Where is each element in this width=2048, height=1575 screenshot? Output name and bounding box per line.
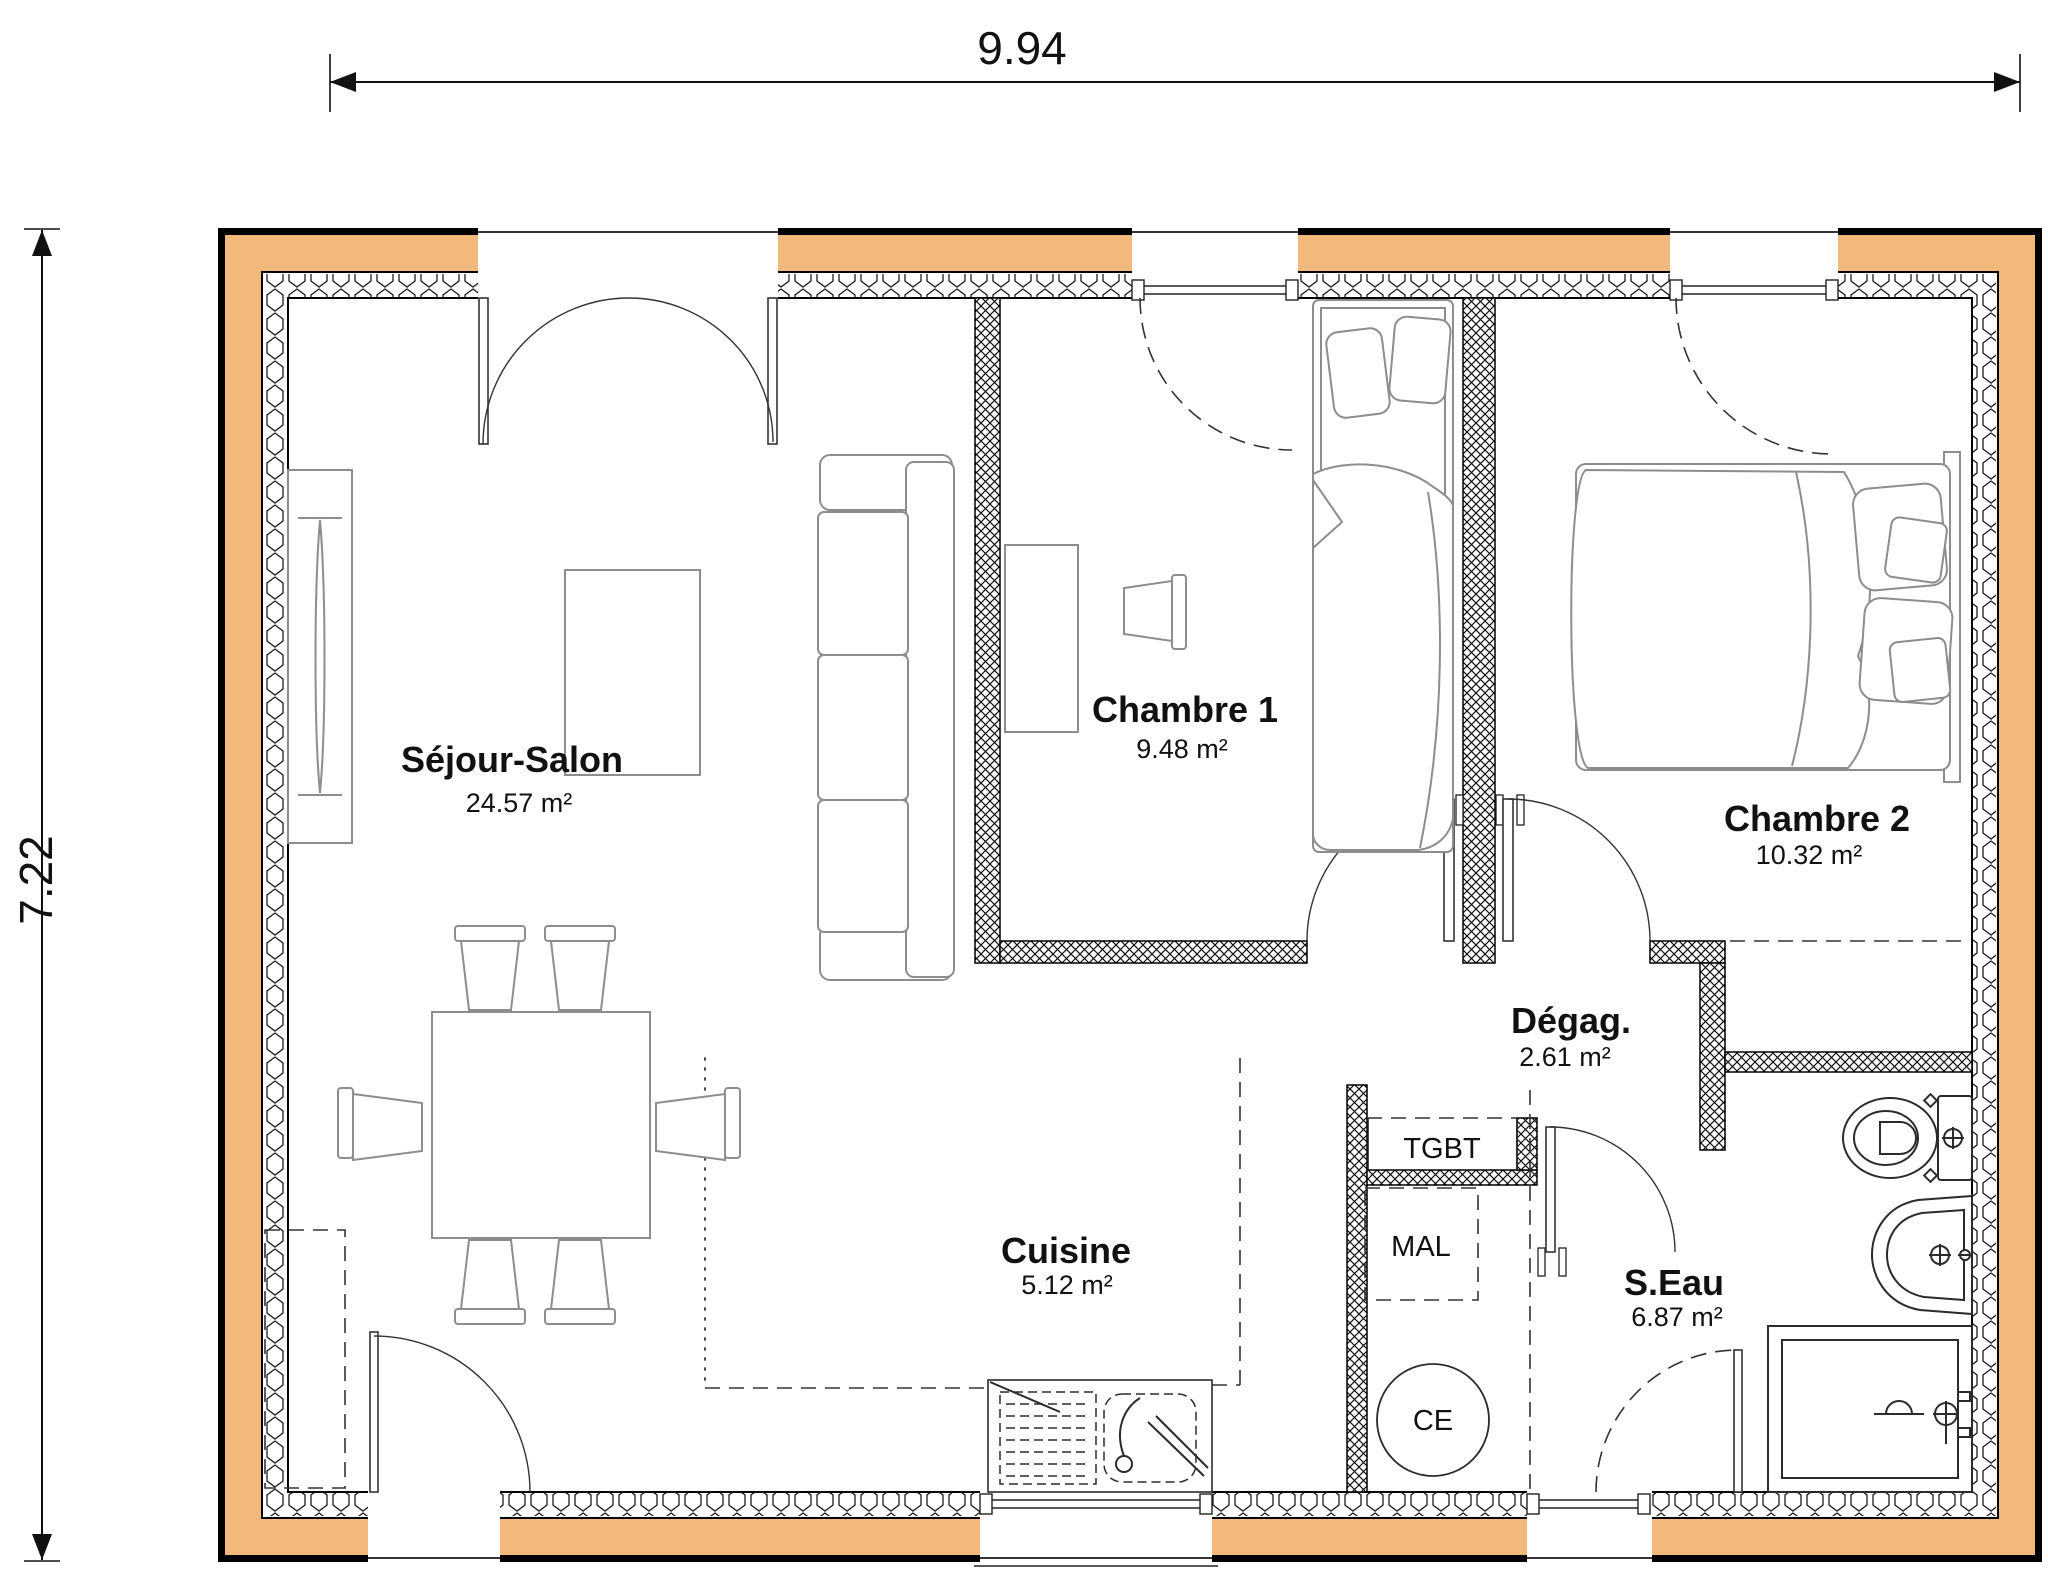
tgbt-label: TGBT (1403, 1133, 1481, 1165)
bed-single (1313, 300, 1453, 852)
room-area-sejour: 24.57 m² (466, 788, 573, 818)
toilet (1843, 1094, 1972, 1182)
sofa (818, 455, 954, 980)
dimension-top: 9.94 (330, 22, 2020, 112)
wall-closet-left (1347, 1085, 1367, 1492)
wall-sejour-chambre1 (975, 298, 1000, 963)
arrow-up-icon (32, 230, 52, 256)
cushion (1889, 637, 1951, 703)
floor-plan: 9.94 7.22 (0, 0, 2048, 1575)
room-label-cuisine: Cuisine (1001, 1230, 1131, 1271)
room-area-chambre1: 9.48 m² (1136, 734, 1228, 764)
wall-seau-top (1725, 1052, 1972, 1072)
room-label-chambre1: Chambre 1 (1092, 689, 1278, 730)
room-area-chambre2: 10.32 m² (1756, 840, 1863, 870)
cushion (1884, 516, 1948, 583)
dimension-left: 7.22 (10, 229, 62, 1561)
mal-label: MAL (1391, 1231, 1451, 1263)
wall-chambre1-bottom (1000, 941, 1307, 963)
room-label-chambre2: Chambre 2 (1724, 798, 1910, 839)
wall-degag-right (1700, 963, 1725, 1150)
room-label-degag: Dégag. (1511, 1000, 1631, 1041)
arrow-right-icon (1994, 72, 2020, 92)
wall-chambre2-bottom (1650, 941, 1725, 963)
dining-table (432, 1012, 650, 1238)
arrow-down-icon (32, 1534, 52, 1560)
wall-tgbt-bottom (1367, 1170, 1537, 1185)
room-label-seau: S.Eau (1624, 1262, 1724, 1303)
bed-double (1571, 452, 1960, 782)
duvet (1571, 470, 1870, 768)
dimension-left-value: 7.22 (10, 835, 62, 925)
ce-label: CE (1413, 1405, 1453, 1437)
desk (1005, 545, 1078, 732)
furniture-chambre2 (1571, 452, 1960, 782)
pillow (1388, 316, 1451, 405)
room-area-cuisine: 5.12 m² (1021, 1270, 1113, 1300)
kitchen-sink-unit (988, 1380, 1212, 1492)
room-label-sejour: Séjour-Salon (401, 739, 623, 780)
room-area-seau: 6.87 m² (1631, 1302, 1723, 1332)
pillow (1325, 327, 1391, 419)
room-area-degag: 2.61 m² (1519, 1042, 1611, 1072)
arrow-left-icon (330, 72, 356, 92)
tv-cabinet (288, 470, 352, 843)
dimension-top-value: 9.94 (977, 22, 1067, 74)
wall-chambre1-chambre2 (1463, 298, 1495, 963)
shower (1768, 1326, 1972, 1492)
wall-tgbt-right (1517, 1118, 1537, 1170)
